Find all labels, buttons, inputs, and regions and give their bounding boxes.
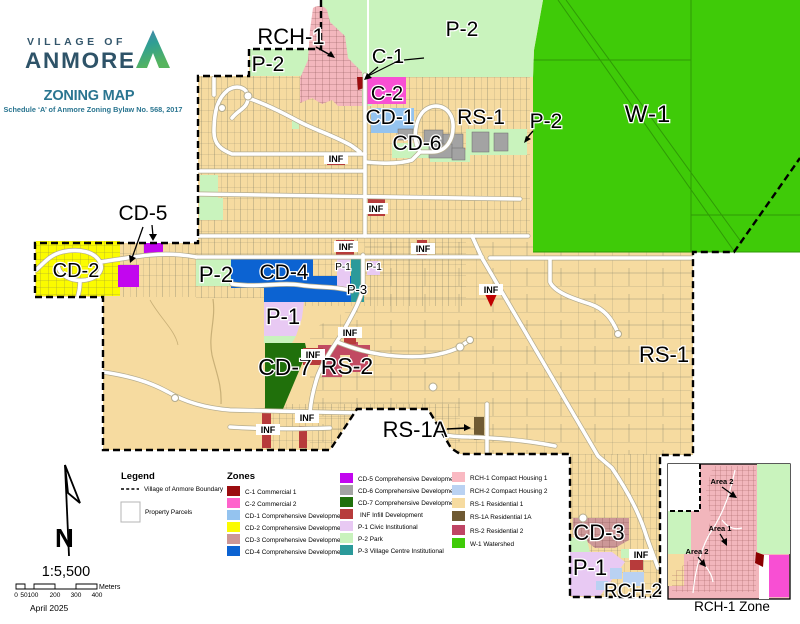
svg-text:RS-1 Residential 1: RS-1 Residential 1 bbox=[470, 501, 524, 508]
svg-text:P-2: P-2 bbox=[199, 262, 233, 287]
svg-text:VILLAGE OF: VILLAGE OF bbox=[27, 36, 126, 48]
svg-text:ZONING MAP: ZONING MAP bbox=[44, 88, 135, 104]
svg-text:Area 2: Area 2 bbox=[686, 547, 709, 556]
svg-text:P-3 Village Centre Institution: P-3 Village Centre Institutional bbox=[358, 548, 444, 555]
svg-text:C-1: C-1 bbox=[372, 46, 404, 68]
svg-text:RS-1A: RS-1A bbox=[383, 417, 448, 442]
svg-text:Property Parcels: Property Parcels bbox=[145, 509, 192, 516]
svg-text:N: N bbox=[55, 523, 74, 553]
svg-text:RCH-2 Compact Housing 2: RCH-2 Compact Housing 2 bbox=[470, 488, 548, 495]
svg-text:RCH-1: RCH-1 bbox=[257, 24, 324, 49]
svg-text:W-1: W-1 bbox=[625, 101, 672, 128]
svg-text:200: 200 bbox=[50, 592, 61, 599]
svg-text:C-2: C-2 bbox=[371, 83, 403, 105]
svg-text:P-2: P-2 bbox=[446, 18, 479, 41]
svg-text:RCH-1 Zone: RCH-1 Zone bbox=[694, 599, 770, 614]
svg-text:CD-1: CD-1 bbox=[365, 106, 414, 129]
svg-text:P-1: P-1 bbox=[266, 304, 300, 329]
svg-text:RS-1: RS-1 bbox=[639, 342, 689, 367]
svg-text:P-1: P-1 bbox=[573, 555, 607, 580]
svg-text:P-1: P-1 bbox=[335, 262, 351, 273]
svg-text:INF: INF bbox=[306, 350, 321, 360]
svg-text:INF: INF bbox=[484, 285, 499, 295]
svg-text:CD-3: CD-3 bbox=[573, 520, 624, 545]
svg-text:RCH-2: RCH-2 bbox=[604, 581, 662, 602]
svg-text:INF: INF bbox=[369, 204, 384, 214]
svg-text:P-2: P-2 bbox=[252, 53, 285, 76]
svg-text:RS-2 Residential 2: RS-2 Residential 2 bbox=[470, 528, 524, 535]
svg-text:RCH-1 Compact Housing 1: RCH-1 Compact Housing 1 bbox=[470, 475, 548, 482]
svg-text:CD-6 Comprehensive Development: CD-6 Comprehensive Development bbox=[358, 488, 459, 495]
svg-text:RS-2: RS-2 bbox=[321, 353, 373, 379]
svg-text:INF: INF bbox=[634, 550, 649, 560]
svg-text:INF: INF bbox=[343, 328, 358, 338]
svg-text:Area 2: Area 2 bbox=[711, 477, 734, 486]
svg-text:C-1 Commercial 1: C-1 Commercial 1 bbox=[245, 489, 297, 496]
svg-text:Meters: Meters bbox=[99, 584, 121, 591]
svg-text:INF Infill Development: INF Infill Development bbox=[360, 512, 423, 519]
svg-text:400: 400 bbox=[92, 592, 103, 599]
svg-text:CD-7 Comprehensive Development: CD-7 Comprehensive Development bbox=[358, 500, 459, 507]
svg-text:ANMORE: ANMORE bbox=[25, 48, 136, 73]
svg-text:CD-4 Comprehensive Development: CD-4 Comprehensive Development bbox=[245, 549, 346, 556]
svg-text:INF: INF bbox=[416, 244, 431, 254]
svg-text:CD-2: CD-2 bbox=[53, 260, 100, 282]
svg-text:CD-6: CD-6 bbox=[392, 132, 441, 155]
svg-text:INF: INF bbox=[339, 242, 354, 252]
svg-text:Area 1: Area 1 bbox=[709, 524, 732, 533]
svg-text:CD-5 Comprehensive Development: CD-5 Comprehensive Development bbox=[358, 476, 459, 483]
svg-text:CD-3 Comprehensive Development: CD-3 Comprehensive Development bbox=[245, 537, 346, 544]
svg-text:W-1 Watershed: W-1 Watershed bbox=[470, 541, 514, 548]
svg-text:RS-1: RS-1 bbox=[457, 106, 505, 129]
svg-text:300: 300 bbox=[71, 592, 82, 599]
svg-text:P-1: P-1 bbox=[366, 262, 382, 273]
svg-text:CD-5: CD-5 bbox=[118, 202, 167, 225]
svg-text:INF: INF bbox=[329, 154, 344, 164]
svg-text:Village of Anmore Boundary: Village of Anmore Boundary bbox=[144, 486, 224, 493]
svg-text:100: 100 bbox=[28, 592, 39, 599]
svg-text:Legend: Legend bbox=[121, 471, 155, 482]
svg-text:P-2: P-2 bbox=[530, 110, 563, 133]
svg-text:P-1 Civic Institutional: P-1 Civic Institutional bbox=[358, 524, 418, 531]
svg-text:C-2 Commercial 2: C-2 Commercial 2 bbox=[245, 501, 297, 508]
svg-text:Schedule ‘A’ of Anmore Zoning: Schedule ‘A’ of Anmore Zoning Bylaw No. … bbox=[4, 105, 183, 114]
svg-text:Zones: Zones bbox=[227, 471, 255, 482]
svg-text:0: 0 bbox=[14, 592, 18, 599]
svg-text:CD-2 Comprehensive Development: CD-2 Comprehensive Development bbox=[245, 525, 346, 532]
svg-text:INF: INF bbox=[261, 425, 276, 435]
svg-text:CD-1 Comprehensive Development: CD-1 Comprehensive Development bbox=[245, 513, 346, 520]
svg-text:INF: INF bbox=[300, 413, 315, 423]
svg-text:CD-4: CD-4 bbox=[259, 261, 308, 284]
svg-text:P-3: P-3 bbox=[347, 282, 367, 297]
svg-text:RS-1A Residential 1A: RS-1A Residential 1A bbox=[470, 514, 532, 521]
svg-text:P-2 Park: P-2 Park bbox=[358, 536, 384, 543]
svg-text:1:5,500: 1:5,500 bbox=[42, 564, 90, 580]
svg-text:April 2025: April 2025 bbox=[30, 603, 69, 613]
